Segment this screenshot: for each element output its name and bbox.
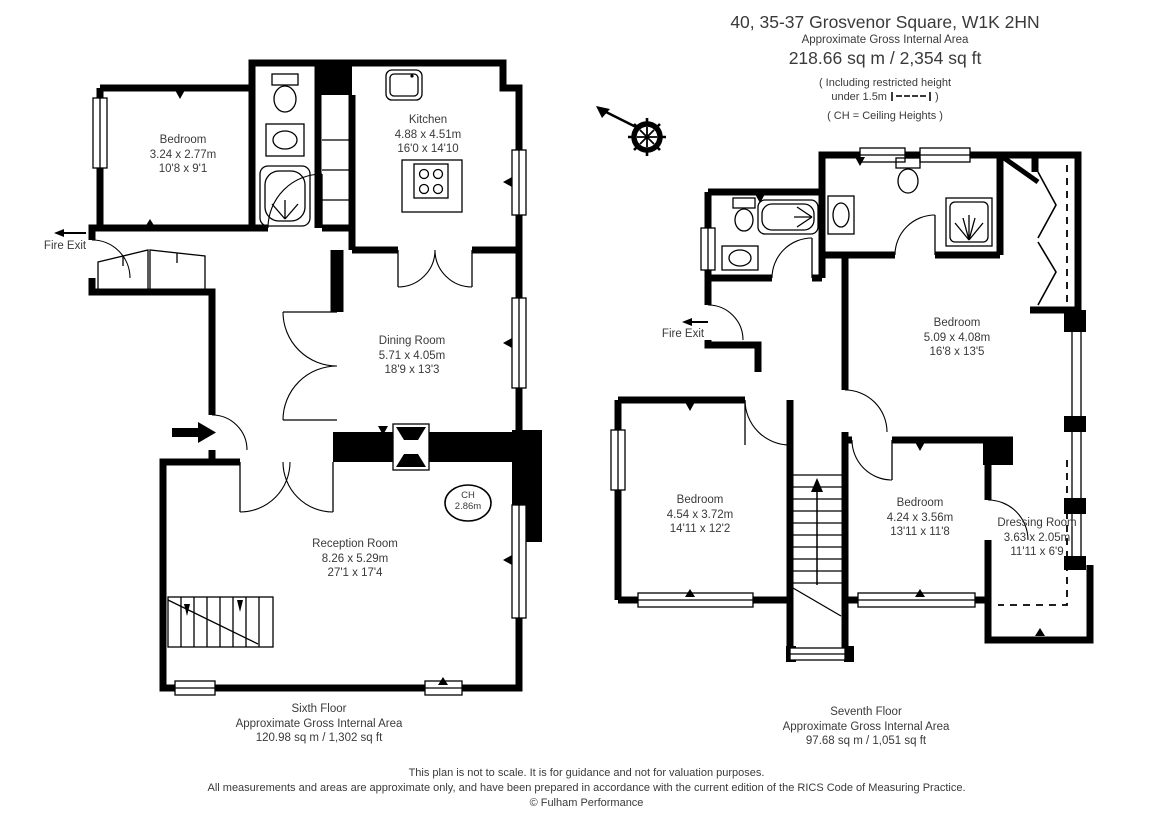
wardrobe <box>1038 165 1067 306</box>
room-label-bedroom-left: Bedroom 4.54 x 3.72m 14'11 x 12'2 <box>667 493 733 537</box>
restricted-height-text: under 1.5m <box>831 91 887 103</box>
room-size-metric: 3.63 x 2.05m <box>997 531 1076 546</box>
header-subtitle: Approximate Gross Internal Area <box>640 33 1130 48</box>
room-name: Bedroom <box>924 316 990 331</box>
room-name: Bedroom <box>887 496 953 511</box>
room-label-dressing: Dressing Room 3.63 x 2.05m 11'11 x 6'9 <box>997 516 1076 560</box>
kitchen-sink-icon <box>386 70 422 100</box>
floor-area-label: Approximate Gross Internal Area <box>236 717 403 732</box>
fire-exit-arrow-icon <box>54 229 86 237</box>
room-size-metric: 4.54 x 3.72m <box>667 508 733 523</box>
cased-opening <box>393 424 429 470</box>
stairs-icon <box>168 597 273 647</box>
plan-header: 40, 35-37 Grosvenor Square, W1K 2HN Appr… <box>640 12 1130 124</box>
restricted-height-symbol <box>891 92 931 101</box>
floor-area-value: 120.98 sq m / 1,302 sq ft <box>236 731 403 746</box>
seventh-floor-doors <box>708 215 1028 540</box>
room-label-bedroom-main: Bedroom 5.09 x 4.08m 16'8 x 13'5 <box>924 316 990 360</box>
fire-exit-label: Fire Exit <box>662 327 704 342</box>
window <box>701 228 715 270</box>
window <box>920 148 970 162</box>
disclaimer-line1: This plan is not to scale. It is for gui… <box>0 766 1173 781</box>
room-name: Bedroom <box>150 133 216 148</box>
room-size-imperial: 14'11 x 12'2 <box>667 522 733 537</box>
disclaimer: This plan is not to scale. It is for gui… <box>0 766 1173 811</box>
bathtub-icon <box>260 166 310 226</box>
disclaimer-line2: All measurements and areas are approxima… <box>0 781 1173 796</box>
room-size-metric: 8.26 x 5.29m <box>312 552 398 567</box>
window <box>611 430 625 490</box>
room-size-imperial: 27'1 x 17'4 <box>312 566 398 581</box>
room-size-metric: 5.09 x 4.08m <box>924 331 990 346</box>
room-size-metric: 5.71 x 4.05m <box>379 349 445 364</box>
sink-icon <box>266 124 304 156</box>
sink-icon <box>722 246 758 270</box>
window <box>512 298 526 388</box>
ceiling-heights-note: ( CH = Ceiling Heights ) <box>640 110 1130 124</box>
lobby-closet <box>98 250 205 290</box>
room-label-kitchen: Kitchen 4.88 x 4.51m 16'0 x 14'10 <box>395 113 461 157</box>
room-name: Dressing Room <box>997 516 1076 531</box>
sixth-floor-caption: Sixth Floor Approximate Gross Internal A… <box>236 702 403 746</box>
window <box>512 505 526 618</box>
entrance-arrow-icon <box>172 422 216 443</box>
window <box>860 148 905 162</box>
room-size-metric: 4.24 x 3.56m <box>887 511 953 526</box>
room-size-imperial: 16'8 x 13'5 <box>924 345 990 360</box>
floor-area-label: Approximate Gross Internal Area <box>783 720 950 735</box>
restricted-height-note-line2: under 1.5m) <box>640 91 1130 105</box>
window <box>790 648 845 660</box>
room-label-bedroom-right: Bedroom 4.24 x 3.56m 13'11 x 11'8 <box>887 496 953 540</box>
room-size-imperial: 11'11 x 6'9 <box>997 545 1076 560</box>
window <box>512 150 526 215</box>
floor-name: Sixth Floor <box>236 702 403 717</box>
closet-shelves <box>322 140 350 200</box>
ensuite-fixtures <box>828 158 992 246</box>
copyright: © Fulham Performance <box>0 796 1173 811</box>
kitchen-island <box>402 160 462 212</box>
shower-icon <box>946 198 992 246</box>
fire-exit-arrow-icon <box>682 318 708 326</box>
room-size-metric: 4.88 x 4.51m <box>395 128 461 143</box>
floor-area-value: 97.68 sq m / 1,051 sq ft <box>783 734 950 749</box>
window <box>93 98 107 168</box>
floor-name: Seventh Floor <box>783 705 950 720</box>
sixth-floor-plan <box>54 63 542 695</box>
sink-icon <box>828 196 854 234</box>
room-label-bedroom: Bedroom 3.24 x 2.77m 10'8 x 9'1 <box>150 133 216 177</box>
room-size-metric: 3.24 x 2.77m <box>150 148 216 163</box>
room-name: Bedroom <box>667 493 733 508</box>
bathroom-fixtures <box>722 198 818 270</box>
room-size-imperial: 13'11 x 11'8 <box>887 525 953 540</box>
room-size-imperial: 10'8 x 9'1 <box>150 162 216 177</box>
restricted-height-note-line1: ( Including restricted height <box>640 77 1130 91</box>
total-area: 218.66 sq m / 2,354 sq ft <box>640 48 1130 69</box>
window <box>175 681 215 695</box>
room-name: Kitchen <box>395 113 461 128</box>
seventh-floor-caption: Seventh Floor Approximate Gross Internal… <box>783 705 950 749</box>
ceiling-height-badge: CH 2.86m <box>455 491 481 512</box>
window <box>638 593 753 607</box>
room-label-dining: Dining Room 5.71 x 4.05m 18'9 x 13'3 <box>379 334 445 378</box>
ch-value: 2.86m <box>455 502 481 513</box>
fire-exit-label: Fire Exit <box>44 239 86 254</box>
toilet-icon <box>272 74 298 112</box>
room-size-imperial: 18'9 x 13'3 <box>379 363 445 378</box>
room-label-reception: Reception Room 8.26 x 5.29m 27'1 x 17'4 <box>312 537 398 581</box>
restricted-height-close: ) <box>935 91 939 103</box>
stairs-icon <box>793 475 842 616</box>
seventh-floor-plan <box>611 148 1090 662</box>
toilet-icon <box>896 158 920 193</box>
room-size-imperial: 16'0 x 14'10 <box>395 142 461 157</box>
room-name: Dining Room <box>379 334 445 349</box>
ch-label: CH <box>455 491 481 502</box>
toilet-icon <box>733 198 755 231</box>
page-title: 40, 35-37 Grosvenor Square, W1K 2HN <box>640 12 1130 33</box>
room-name: Reception Room <box>312 537 398 552</box>
floorplan-page: 40, 35-37 Grosvenor Square, W1K 2HN Appr… <box>0 0 1173 823</box>
bathroom-fixtures <box>260 74 310 226</box>
bathtub-icon <box>758 200 818 234</box>
